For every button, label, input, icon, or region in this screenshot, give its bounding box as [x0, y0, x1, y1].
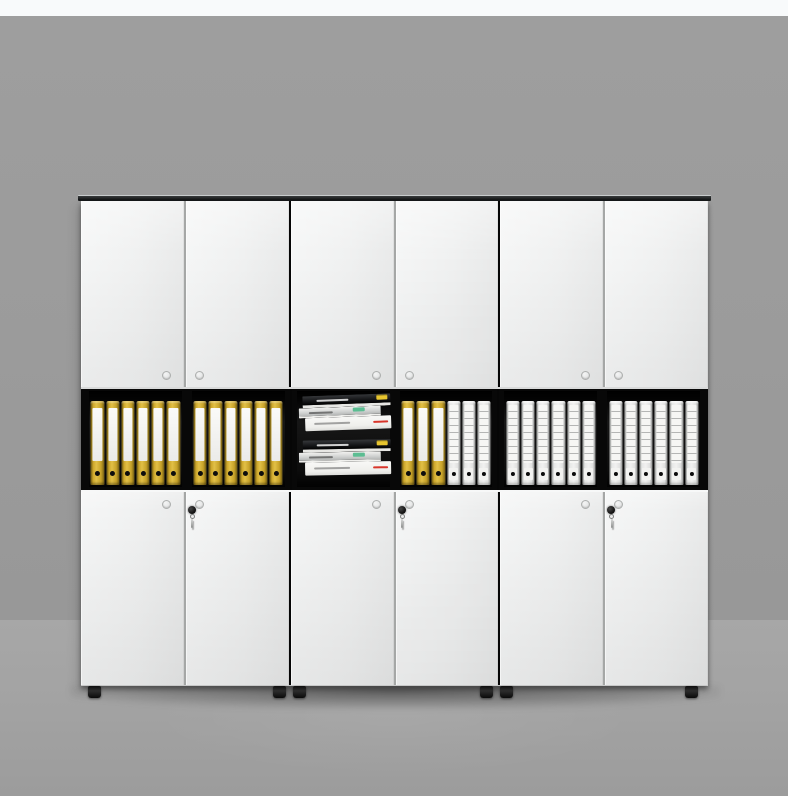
binder-spine-label	[672, 405, 681, 463]
cabinet-foot	[293, 686, 306, 698]
shelf-compartment-1	[89, 391, 182, 487]
cabinet-unit-lower-2	[289, 492, 499, 685]
binder-spine-label	[419, 408, 428, 461]
upper-door-row	[81, 201, 708, 389]
binder-spine-label	[641, 405, 650, 463]
binder-finger-hole	[452, 472, 456, 476]
binder-finger-hole	[614, 472, 618, 476]
cabinet-door-lower-4	[394, 492, 499, 685]
door-knob	[372, 371, 381, 380]
book-stack-1	[298, 394, 384, 441]
binder-row	[506, 401, 595, 485]
binder-dot-label	[626, 468, 635, 480]
binder-dot-label	[584, 468, 593, 480]
door-knob	[195, 500, 204, 509]
cabinet-foot	[273, 686, 286, 698]
binder-spine-label	[611, 405, 620, 463]
door-knob	[614, 500, 623, 509]
binder-finger-hole	[228, 471, 233, 476]
binder-dot-label	[687, 468, 696, 480]
page-top-strip	[0, 0, 788, 16]
binder-row	[91, 401, 180, 485]
binder-finger-hole	[436, 471, 441, 476]
binder-finger-hole	[644, 472, 648, 476]
binder-spine-label	[687, 405, 696, 463]
cabinet-door-lower-6	[603, 492, 708, 685]
cabinet-unit-lower-3	[498, 492, 708, 685]
door-knob	[581, 371, 590, 380]
shelf-compartment-4	[400, 391, 493, 487]
binder-spine-label	[226, 408, 235, 461]
yellow-binder	[401, 401, 414, 485]
book-tag-green	[352, 407, 364, 411]
binder-spine-label	[403, 408, 412, 461]
white-binder	[552, 401, 565, 485]
binder-spine-label	[508, 405, 517, 463]
cabinet-door-lower-1	[81, 492, 184, 685]
yellow-binder	[224, 401, 237, 485]
shelf-compartment-5	[504, 391, 597, 487]
shelf-compartment-6	[607, 391, 700, 487]
book-tag-red	[373, 466, 388, 468]
cabinet-body	[81, 201, 708, 686]
binder-finger-hole	[110, 471, 115, 476]
binder-finger-hole	[511, 472, 515, 476]
cabinet-door-upper-5	[500, 201, 603, 387]
yellow-binder	[209, 401, 222, 485]
binder-finger-hole	[690, 472, 694, 476]
book-spine-white	[305, 415, 391, 431]
binder-finger-hole	[141, 471, 146, 476]
binder-finger-hole	[541, 472, 545, 476]
cabinet-unit-upper-2	[289, 201, 499, 387]
white-binder	[447, 401, 460, 485]
binder-finger-hole	[587, 472, 591, 476]
cabinet-door-upper-1	[81, 201, 184, 387]
yellow-binder	[239, 401, 252, 485]
binder-finger-hole	[556, 472, 560, 476]
yellow-binder	[121, 401, 134, 485]
door-lock	[188, 506, 196, 514]
cabinet-foot	[88, 686, 101, 698]
binder-dot-label	[539, 468, 548, 480]
door-knob	[162, 371, 171, 380]
cabinet-unit-upper-1	[81, 201, 289, 387]
yellow-binder	[432, 401, 445, 485]
cabinet-door-upper-6	[603, 201, 708, 387]
open-shelf-row	[81, 389, 708, 490]
binder-dot-label	[611, 468, 620, 480]
key-stem	[191, 519, 193, 528]
cabinet-door-lower-3	[291, 492, 394, 685]
binder-spine-label	[93, 408, 102, 461]
binder-finger-hole	[243, 471, 248, 476]
yellow-binder	[194, 401, 207, 485]
book-stack-2	[298, 439, 384, 484]
binder-spine-label	[584, 405, 593, 463]
binder-dot-label	[449, 468, 458, 480]
hanging-key	[400, 514, 405, 529]
cabinet-foot	[500, 686, 513, 698]
yellow-binder	[91, 401, 104, 485]
cabinet-unit-lower-1	[81, 492, 289, 685]
binder-dot-label	[642, 468, 651, 480]
binder-finger-hole	[674, 472, 678, 476]
yellow-binder	[417, 401, 430, 485]
door-knob	[195, 371, 204, 380]
shelf-compartment-2	[192, 391, 285, 487]
cabinet-foot	[685, 686, 698, 698]
binder-finger-hole	[171, 471, 176, 476]
binder-finger-hole	[274, 471, 279, 476]
white-binder	[609, 401, 622, 485]
binder-spine-label	[256, 408, 265, 461]
binder-row	[401, 401, 490, 485]
door-knob	[581, 500, 590, 509]
binder-finger-hole	[572, 472, 576, 476]
door-knob	[614, 371, 623, 380]
cabinet-unit-upper-3	[498, 201, 708, 387]
cabinet-door-upper-2	[184, 201, 289, 387]
binder-dot-label	[554, 468, 563, 480]
book-tag-yellow	[376, 440, 388, 445]
yellow-binder	[106, 401, 119, 485]
key-stem	[401, 519, 403, 528]
white-binder	[462, 401, 475, 485]
binder-spine-label	[626, 405, 635, 463]
binder-spine-label	[154, 408, 163, 461]
binder-spine-label	[108, 408, 117, 461]
book-tag-green	[353, 452, 365, 456]
binder-finger-hole	[482, 472, 486, 476]
door-knob	[162, 500, 171, 509]
key-stem	[611, 519, 613, 528]
white-binder	[567, 401, 580, 485]
product-photo	[0, 0, 788, 796]
filing-cabinet	[78, 195, 711, 698]
binder-spine-label	[523, 405, 532, 463]
binder-dot-label	[479, 468, 488, 480]
cabinet-door-upper-3	[291, 201, 394, 387]
binder-finger-hole	[467, 472, 471, 476]
door-knob	[405, 500, 414, 509]
white-binder	[537, 401, 550, 485]
yellow-binder	[270, 401, 283, 485]
binder-dot-label	[523, 468, 532, 480]
cabinet-door-lower-2	[184, 492, 289, 685]
lower-door-row	[81, 490, 708, 686]
binder-finger-hole	[659, 472, 663, 476]
binder-row	[194, 401, 283, 485]
white-binder	[477, 401, 490, 485]
binder-dot-label	[569, 468, 578, 480]
binder-finger-hole	[198, 471, 203, 476]
hanging-key	[609, 514, 614, 529]
binder-spine-label	[449, 405, 458, 463]
book-tag-red	[373, 420, 388, 423]
binder-spine-label	[479, 405, 488, 463]
binder-spine-label	[569, 405, 578, 463]
book-stacks	[299, 394, 384, 484]
yellow-binder	[254, 401, 267, 485]
white-binder	[685, 401, 698, 485]
binder-dot-label	[508, 468, 517, 480]
binder-finger-hole	[259, 471, 264, 476]
book-tag-yellow	[376, 394, 388, 400]
binder-dot-label	[657, 468, 666, 480]
white-binder	[521, 401, 534, 485]
yellow-binder	[167, 401, 180, 485]
white-binder	[506, 401, 519, 485]
binder-finger-hole	[95, 471, 100, 476]
shelf-unit-3	[497, 389, 705, 490]
binder-dot-label	[672, 468, 681, 480]
binder-finger-hole	[125, 471, 130, 476]
binder-finger-hole	[405, 471, 410, 476]
cabinet-feet	[78, 686, 711, 698]
binder-spine-label	[138, 408, 147, 461]
binder-finger-hole	[421, 471, 426, 476]
binder-spine-label	[272, 408, 281, 461]
binder-spine-label	[169, 408, 178, 461]
binder-spine-label	[464, 405, 473, 463]
door-lock	[607, 506, 615, 514]
white-binder	[639, 401, 652, 485]
binder-spine-label	[539, 405, 548, 463]
hanging-key	[190, 514, 195, 529]
shelf-unit-1	[84, 389, 290, 490]
white-binder	[582, 401, 595, 485]
shelf-compartment-3	[297, 391, 390, 487]
binder-finger-hole	[213, 471, 218, 476]
binder-spine-label	[241, 408, 250, 461]
binder-spine-label	[554, 405, 563, 463]
white-binder	[655, 401, 668, 485]
binder-finger-hole	[156, 471, 161, 476]
cabinet-door-upper-4	[394, 201, 499, 387]
binder-spine-label	[657, 405, 666, 463]
door-knob	[372, 500, 381, 509]
cabinet-foot	[480, 686, 493, 698]
binder-finger-hole	[629, 472, 633, 476]
yellow-binder	[136, 401, 149, 485]
shelf-unit-2	[290, 389, 498, 490]
binder-spine-label	[434, 408, 443, 461]
white-binder	[624, 401, 637, 485]
binder-finger-hole	[526, 472, 530, 476]
binder-spine-label	[196, 408, 205, 461]
door-knob	[405, 371, 414, 380]
white-binder	[670, 401, 683, 485]
door-lock	[398, 506, 406, 514]
yellow-binder	[152, 401, 165, 485]
binder-spine-label	[123, 408, 132, 461]
binder-dot-label	[464, 468, 473, 480]
cabinet-door-lower-5	[500, 492, 603, 685]
binder-spine-label	[211, 408, 220, 461]
book-spine-white	[305, 461, 391, 475]
binder-row	[609, 401, 698, 485]
